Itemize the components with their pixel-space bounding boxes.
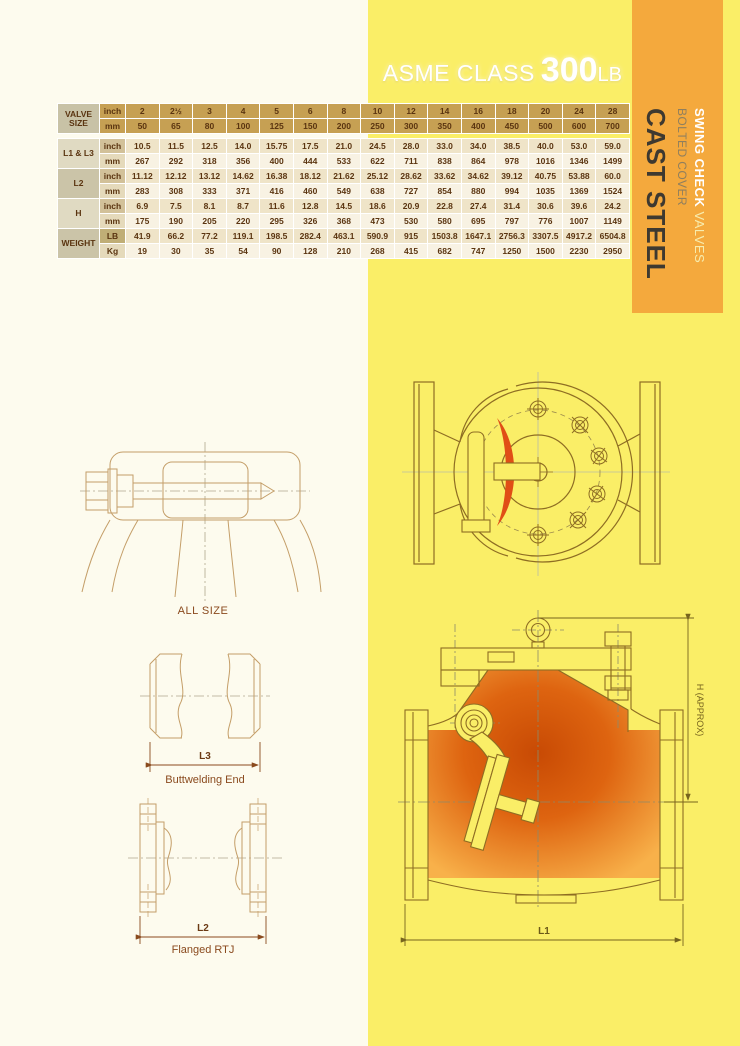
dim-value: 14.62 (226, 169, 260, 184)
dim-value: 77.2 (193, 229, 227, 244)
size-mm-300: 300 (394, 119, 428, 134)
dim-value: 35 (193, 244, 227, 259)
dim-value: 12.8 (293, 199, 327, 214)
dim-value: 33.62 (428, 169, 462, 184)
size-mm-65: 65 (159, 119, 193, 134)
dim-value: 416 (260, 184, 294, 199)
dim-value: 34.0 (461, 139, 495, 154)
dim-value: 12.12 (159, 169, 193, 184)
body-shoulder-curves (82, 520, 321, 597)
dim-value: 28.62 (394, 169, 428, 184)
dim-value: 198.5 (260, 229, 294, 244)
l2-dim-label: L2 (197, 923, 209, 934)
hinge-foot (462, 520, 490, 532)
dim-value: 797 (495, 214, 529, 229)
dim-value: 18.12 (293, 169, 327, 184)
dim-value: 283 (126, 184, 160, 199)
dim-value: 6.9 (126, 199, 160, 214)
row-label-l1l3: L1 & L3 (58, 139, 100, 169)
dim-value: 8.7 (226, 199, 260, 214)
dim-value: 267 (126, 154, 160, 169)
dim-value: 994 (495, 184, 529, 199)
dim-value: 1250 (495, 244, 529, 259)
buttwelding-end-drawing: L3 Buttwelding End (140, 646, 270, 788)
dim-value: 40.0 (529, 139, 563, 154)
flanged-rtj-drawing: L2 Flanged RTJ (128, 798, 282, 956)
dim-value: 190 (159, 214, 193, 229)
sidebar-vertical-text: SWING CHECK VALVES BOLTED COVER CAST STE… (640, 108, 707, 323)
sidebar-material: CAST STEEL (640, 108, 671, 323)
size-mm-400: 400 (461, 119, 495, 134)
dim-value: 2756.3 (495, 229, 529, 244)
dim-value: 1647.1 (461, 229, 495, 244)
sidebar-product-line: SWING CHECK VALVES (692, 108, 707, 323)
size-mm-80: 80 (193, 119, 227, 134)
title-rating-unit: LB (598, 64, 622, 86)
dim-value: 580 (428, 214, 462, 229)
hinge-pin-column (468, 432, 484, 526)
dim-value: 205 (193, 214, 227, 229)
size-inch-28: 28 (596, 104, 630, 119)
flange-left (405, 710, 428, 900)
dim-value: 27.4 (461, 199, 495, 214)
body-interior-gradient (428, 670, 660, 878)
dim-value: 695 (461, 214, 495, 229)
table-corner-label: VALVE SIZE (58, 104, 100, 134)
size-inch-18: 18 (495, 104, 529, 119)
dim-value: 128 (293, 244, 327, 259)
dim-value: 622 (361, 154, 395, 169)
dim-value: 308 (159, 184, 193, 199)
dim-value: 415 (394, 244, 428, 259)
dim-value: 333 (193, 184, 227, 199)
row-unit-bottom: mm (100, 214, 126, 229)
h-approx-dim-label: H (APPROX) (695, 684, 705, 737)
dim-value: 1499 (596, 154, 630, 169)
dim-value: 318 (193, 154, 227, 169)
dim-value: 11.12 (126, 169, 160, 184)
dim-value: 533 (327, 154, 361, 169)
buttwelding-caption: Buttwelding End (165, 774, 245, 786)
dim-value: 444 (293, 154, 327, 169)
catalog-page: { "header": { "class_label": "ASME CLASS… (0, 0, 740, 1046)
row-label-h: H (58, 199, 100, 229)
size-mm-150: 150 (293, 119, 327, 134)
dim-value: 60.0 (596, 169, 630, 184)
row-unit-top: inch (100, 139, 126, 154)
size-inch-20: 20 (529, 104, 563, 119)
dim-value: 978 (495, 154, 529, 169)
size-inch-12: 12 (394, 104, 428, 119)
sidebar-subtitle: BOLTED COVER (675, 108, 689, 323)
size-mm-200: 200 (327, 119, 361, 134)
dim-value: 7.5 (159, 199, 193, 214)
dim-value: 1016 (529, 154, 563, 169)
dim-value: 16.38 (260, 169, 294, 184)
dim-value: 682 (428, 244, 462, 259)
dim-value: 21.0 (327, 139, 361, 154)
dim-value: 31.4 (495, 199, 529, 214)
flange-left (414, 382, 460, 564)
size-mm-50: 50 (126, 119, 160, 134)
dim-value: 915 (394, 229, 428, 244)
dim-value: 90 (260, 244, 294, 259)
dim-value: 220 (226, 214, 260, 229)
size-inch-6: 6 (293, 104, 327, 119)
dim-value: 838 (428, 154, 462, 169)
dim-value: 25.12 (361, 169, 395, 184)
l3-dim-label: L3 (199, 751, 211, 762)
unit-header-inch: inch (100, 104, 126, 119)
dim-value: 463.1 (327, 229, 361, 244)
dim-value: 39.12 (495, 169, 529, 184)
valve-section-drawing: H (APPROX) L1 (398, 610, 704, 960)
dim-value: 39.6 (562, 199, 596, 214)
dim-value: 11.5 (159, 139, 193, 154)
dim-value: 268 (361, 244, 395, 259)
dim-value: 53.0 (562, 139, 596, 154)
dim-value: 371 (226, 184, 260, 199)
dim-value: 14.5 (327, 199, 361, 214)
all-size-caption: ALL SIZE (158, 605, 248, 617)
dim-value: 14.0 (226, 139, 260, 154)
dim-value: 19 (126, 244, 160, 259)
dim-value: 41.9 (126, 229, 160, 244)
dim-value: 460 (293, 184, 327, 199)
size-mm-500: 500 (529, 119, 563, 134)
dim-value: 1369 (562, 184, 596, 199)
size-mm-250: 250 (361, 119, 395, 134)
row-unit-bottom: mm (100, 154, 126, 169)
dim-value: 12.5 (193, 139, 227, 154)
dim-value: 530 (394, 214, 428, 229)
size-inch-24: 24 (562, 104, 596, 119)
dimensions-table: VALVE SIZEinch22½345681012141618202428mm… (57, 103, 630, 259)
dim-value: 776 (529, 214, 563, 229)
dim-value: 1149 (596, 214, 630, 229)
flanged-caption: Flanged RTJ (172, 944, 235, 956)
dim-value: 1500 (529, 244, 563, 259)
dim-value: 368 (327, 214, 361, 229)
dim-value: 1007 (562, 214, 596, 229)
disc-stem (494, 463, 540, 480)
all-size-detail-drawing (78, 442, 325, 604)
row-unit-top: inch (100, 169, 126, 184)
dim-value: 747 (461, 244, 495, 259)
dim-value: 2230 (562, 244, 596, 259)
size-inch-4: 4 (226, 104, 260, 119)
dim-value: 549 (327, 184, 361, 199)
dim-value: 400 (260, 154, 294, 169)
size-inch-16: 16 (461, 104, 495, 119)
dim-value: 175 (126, 214, 160, 229)
dim-value: 3307.5 (529, 229, 563, 244)
size-inch-5: 5 (260, 104, 294, 119)
dim-value: 13.12 (193, 169, 227, 184)
size-mm-700: 700 (596, 119, 630, 134)
dim-value: 119.1 (226, 229, 260, 244)
dim-value: 24.5 (361, 139, 395, 154)
size-inch-2½: 2½ (159, 104, 193, 119)
dim-value: 292 (159, 154, 193, 169)
dim-value: 17.5 (293, 139, 327, 154)
flange-right (660, 710, 683, 900)
row-unit-top: inch (100, 199, 126, 214)
dim-value: 295 (260, 214, 294, 229)
valve-side-view-drawing (402, 372, 670, 576)
dim-value: 473 (361, 214, 395, 229)
dim-value: 210 (327, 244, 361, 259)
dim-value: 727 (394, 184, 428, 199)
dim-value: 22.8 (428, 199, 462, 214)
page-title: ASME CLASS300LB (383, 51, 622, 90)
dim-value: 1524 (596, 184, 630, 199)
flange-right (618, 382, 660, 564)
dim-value: 1503.8 (428, 229, 462, 244)
dim-value: 282.4 (293, 229, 327, 244)
dim-value: 10.5 (126, 139, 160, 154)
row-unit-top: LB (100, 229, 126, 244)
dim-value: 66.2 (159, 229, 193, 244)
dim-value: 33.0 (428, 139, 462, 154)
size-mm-125: 125 (260, 119, 294, 134)
dim-value: 59.0 (596, 139, 630, 154)
dim-value: 21.62 (327, 169, 361, 184)
row-unit-bottom: mm (100, 184, 126, 199)
row-label-weight: WEIGHT (58, 229, 100, 259)
dim-value: 34.62 (461, 169, 495, 184)
bonnet-boss-outline (163, 462, 248, 518)
size-mm-100: 100 (226, 119, 260, 134)
dim-value: 1346 (562, 154, 596, 169)
dim-value: 711 (394, 154, 428, 169)
dim-value: 590.9 (361, 229, 395, 244)
size-inch-10: 10 (361, 104, 395, 119)
size-mm-450: 450 (495, 119, 529, 134)
dim-value: 30 (159, 244, 193, 259)
size-inch-3: 3 (193, 104, 227, 119)
dim-value: 854 (428, 184, 462, 199)
dim-value: 638 (361, 184, 395, 199)
row-unit-bottom: Kg (100, 244, 126, 259)
l1-dim-label: L1 (538, 926, 550, 937)
dim-value: 2950 (596, 244, 630, 259)
dim-value: 356 (226, 154, 260, 169)
dim-value: 864 (461, 154, 495, 169)
dim-value: 38.5 (495, 139, 529, 154)
size-mm-600: 600 (562, 119, 596, 134)
dim-value: 11.6 (260, 199, 294, 214)
dim-value: 24.2 (596, 199, 630, 214)
title-rating: 300 (541, 51, 598, 89)
dim-value: 30.6 (529, 199, 563, 214)
dim-value: 15.75 (260, 139, 294, 154)
dim-value: 28.0 (394, 139, 428, 154)
dim-value: 4917.2 (562, 229, 596, 244)
dim-value: 1035 (529, 184, 563, 199)
dim-value: 8.1 (193, 199, 227, 214)
size-mm-350: 350 (428, 119, 462, 134)
dim-value: 880 (461, 184, 495, 199)
row-label-l2: L2 (58, 169, 100, 199)
dim-value: 40.75 (529, 169, 563, 184)
dim-value: 53.88 (562, 169, 596, 184)
dim-value: 6504.8 (596, 229, 630, 244)
size-inch-2: 2 (126, 104, 160, 119)
dim-value: 20.9 (394, 199, 428, 214)
size-inch-14: 14 (428, 104, 462, 119)
dim-value: 18.6 (361, 199, 395, 214)
dim-value: 326 (293, 214, 327, 229)
size-inch-8: 8 (327, 104, 361, 119)
dim-value: 54 (226, 244, 260, 259)
unit-header-mm: mm (100, 119, 126, 134)
title-class-text: ASME CLASS (383, 60, 535, 86)
